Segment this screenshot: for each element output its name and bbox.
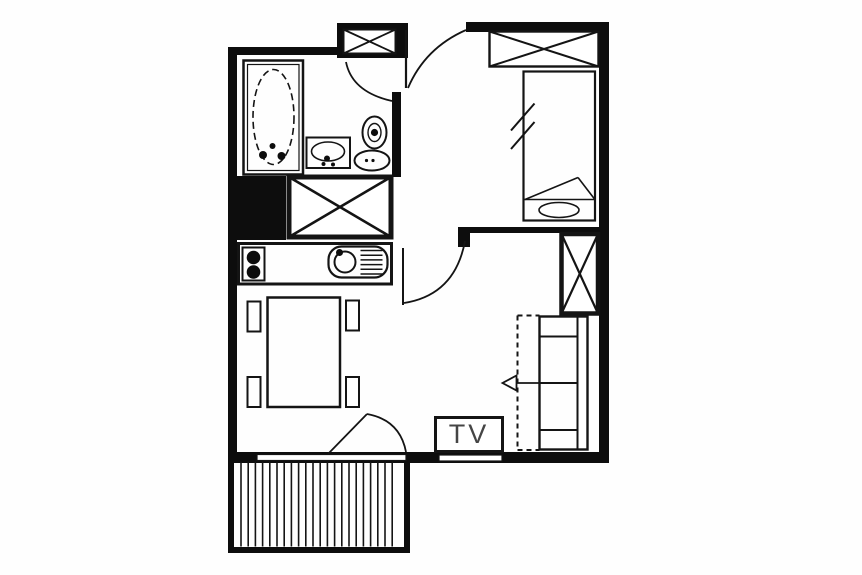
washbasin-faucet-dot	[324, 156, 330, 162]
wall-top-bathroom	[228, 47, 338, 55]
wall-right	[599, 22, 609, 463]
bathtub-basin-oval	[253, 70, 294, 165]
stove-burner	[247, 251, 261, 265]
washbasin-dot	[322, 162, 326, 166]
entry-wardrobe	[344, 30, 396, 54]
wall-bathroom-right	[392, 92, 401, 177]
duct-block	[228, 176, 286, 240]
window-balcony-strip	[257, 455, 406, 461]
kitchen-faucet-dot	[336, 249, 343, 256]
balcony-door-leaf	[328, 414, 367, 454]
bedroom-wardrobe	[490, 32, 599, 67]
sofabed-arrow-head	[503, 376, 517, 391]
floor-plan-drawing	[0, 0, 862, 575]
dining-chair	[346, 377, 359, 407]
toilet-bowl-dot	[371, 159, 374, 162]
stove-burner	[247, 265, 261, 279]
bed-outline	[524, 72, 596, 221]
living-door-arc	[404, 241, 465, 303]
dining-chair	[248, 302, 261, 332]
bathtub-drain-dot	[270, 143, 276, 149]
divider-wardrobe	[562, 234, 599, 314]
balcony-door-arc	[367, 414, 406, 452]
wall-left	[228, 47, 237, 463]
tv-label: TV	[435, 417, 503, 452]
dining-chair	[346, 301, 359, 331]
bed-fold-line	[525, 178, 578, 200]
entry-door-arc	[408, 30, 466, 88]
hall-wardrobe	[289, 177, 391, 237]
bed-fold-line	[578, 178, 595, 200]
dining-table	[268, 298, 341, 408]
bathtub-faucet-dot	[278, 152, 286, 160]
toilet-bowl-dot	[365, 159, 368, 162]
bed-pillow	[539, 203, 579, 218]
dining-chair	[248, 377, 261, 407]
balcony-decking-hatch	[241, 462, 392, 547]
bathroom-door-arc	[346, 62, 392, 101]
toilet-flush-dot	[371, 129, 378, 136]
bathtub-faucet-dot	[259, 151, 267, 159]
balcony-wall-right	[404, 461, 410, 553]
floor-plan-canvas: TV	[0, 0, 862, 575]
window-living	[439, 455, 502, 461]
balcony-wall-left	[228, 461, 234, 553]
balcony-wall-bottom	[228, 547, 410, 553]
bathtub-inner	[248, 65, 300, 171]
washbasin-dot	[331, 163, 335, 167]
